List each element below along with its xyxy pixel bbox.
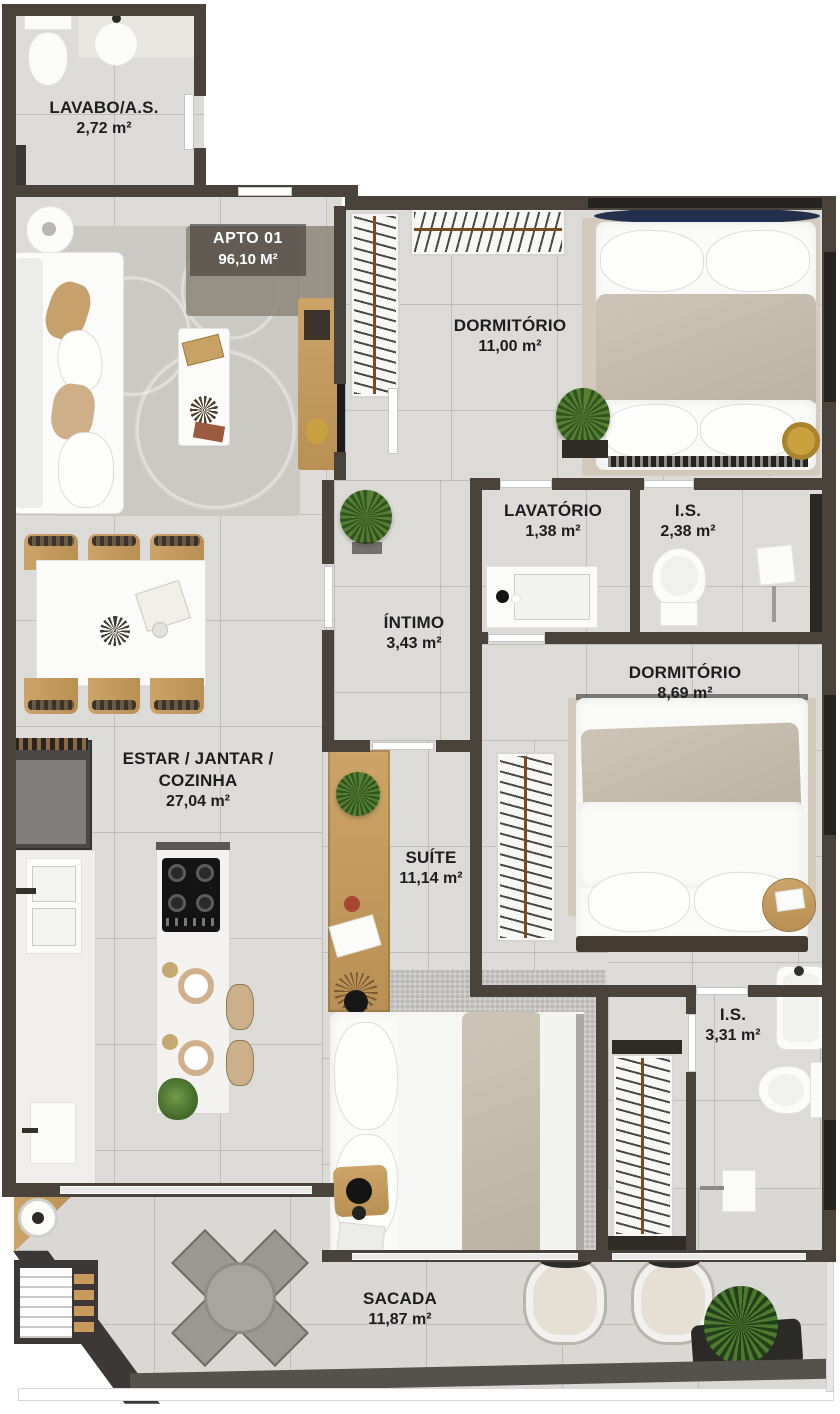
wall-entry-top <box>2 185 358 197</box>
room-label-sacada: SACADA 11,87 m² <box>320 1288 480 1331</box>
wall-suite-top-seg1 <box>334 740 370 752</box>
floor-plan-apto-01: APTO 01 96,10 M² <box>0 0 840 1414</box>
dormitorio1-pillow <box>599 228 705 294</box>
room-label-lavabo: LAVABO/A.S. 2,72 m² <box>12 97 196 140</box>
room-area-is1: 2,38 m² <box>628 522 748 543</box>
dormitorio1-side-rack-rod <box>373 216 376 394</box>
wall-intimo-left-upper <box>322 480 334 564</box>
room-label-is2: I.S. 3,31 m² <box>668 1004 798 1047</box>
lavabo-sink-basin <box>94 22 138 66</box>
island-stool <box>226 984 254 1030</box>
wicker-chair <box>526 1258 604 1342</box>
kitchen-sink-basin-1 <box>32 866 76 902</box>
room-name-is2: I.S. <box>668 1004 798 1026</box>
place-setting-plate <box>178 1040 214 1076</box>
room-label-is1: I.S. 2,38 m² <box>628 500 748 543</box>
room-area-suite: 11,14 m² <box>356 869 506 890</box>
room-name-lavatorio: LAVATÓRIO <box>486 500 620 522</box>
floor-lamp-shade <box>42 222 56 236</box>
lavatorio-faucet <box>496 590 509 603</box>
room-name-estar-line1: ESTAR / JANTAR / <box>88 748 308 770</box>
lavabo-toilet-tank <box>24 14 72 30</box>
dining-chair-back <box>28 700 74 710</box>
lavatorio-door <box>500 480 552 488</box>
room-name-dormitorio1: DORMITÓRIO <box>380 315 640 337</box>
suite-pillow <box>332 1021 400 1131</box>
kitchen-island-edge <box>156 842 230 850</box>
place-setting-bowl <box>162 962 178 978</box>
wall-dormitorio2-left <box>470 644 482 996</box>
closet-rack-rod <box>641 1058 644 1234</box>
suite-balcony-slider <box>352 1253 578 1260</box>
kitchen-utensil-rail <box>14 738 88 750</box>
kitchen-prep-sink <box>30 1102 76 1164</box>
island-stool <box>226 1040 254 1086</box>
sacada-outer-rail <box>18 1388 834 1401</box>
room-area-dormitorio1: 11,00 m² <box>380 337 640 358</box>
dormitorio1-plant <box>556 388 610 446</box>
room-label-suite: SUÍTE 11,14 m² <box>356 847 506 890</box>
dormitorio1-door <box>388 388 398 454</box>
kitchen-sink-basin-2 <box>32 908 76 946</box>
room-name-suite: SUÍTE <box>356 847 506 869</box>
room-label-lavatorio: LAVATÓRIO 1,38 m² <box>486 500 620 543</box>
dormitorio1-top-rack-hangers <box>414 212 562 252</box>
tv-console-vase <box>306 418 328 444</box>
wall-suite-top-seg2 <box>436 740 480 752</box>
room-area-lavabo: 2,72 m² <box>12 119 196 140</box>
place-setting-bowl <box>162 1034 178 1050</box>
island-greens <box>158 1078 198 1120</box>
place-setting-plate <box>178 968 214 1004</box>
is2-shower-arm <box>700 1186 724 1190</box>
room-area-estar: 27,04 m² <box>88 792 308 813</box>
dining-chair-back <box>28 536 74 546</box>
kitchen-cabinet-front <box>16 760 86 844</box>
wall-lavabo-top <box>2 4 206 16</box>
dormitorio1-plant-box <box>562 440 608 458</box>
dining-centerpiece <box>100 616 130 646</box>
dormitorio2-headboard <box>576 936 808 952</box>
living-balcony-slider <box>60 1186 312 1194</box>
wall-left-outer <box>2 4 16 1196</box>
lavabo-toilet-bowl <box>28 32 68 86</box>
apto-title-box: APTO 01 96,10 M² <box>190 224 306 276</box>
kitchen-sink-faucet <box>16 888 36 894</box>
tv-console-decor <box>304 310 330 340</box>
window-right-1 <box>824 252 836 402</box>
dining-chair-back <box>92 700 136 710</box>
is2-toilet-seat <box>768 1074 804 1106</box>
suite-stool-decor <box>352 1206 366 1220</box>
wall-is2-left-lower <box>686 1072 696 1262</box>
cooktop-knobs <box>166 918 216 926</box>
wall-lavabo-right-upper <box>194 4 206 96</box>
is1-shower-stem <box>772 586 776 622</box>
suite-blanket <box>462 1012 542 1258</box>
is2-shower-head <box>722 1170 756 1212</box>
is1-toilet-tank <box>660 602 698 626</box>
room-name-is1: I.S. <box>628 500 748 522</box>
room-area-is2: 3,31 m² <box>668 1026 798 1047</box>
intimo-plant-pot <box>352 542 382 554</box>
is1-door <box>644 480 694 488</box>
wall-living-dorm1-lower <box>334 452 346 480</box>
suite-bed-foot-trim <box>576 1014 584 1256</box>
room-area-dormitorio2: 8,69 m² <box>560 684 810 705</box>
sacada-right-rail <box>826 1256 834 1392</box>
cooktop-burner <box>168 894 186 912</box>
window-right-2 <box>824 695 836 835</box>
wall-h985-seg2 <box>748 985 836 997</box>
dormitorio1-bed-runner <box>608 456 808 467</box>
suite-door <box>372 742 434 750</box>
room-label-dormitorio1: DORMITÓRIO 11,00 m² <box>380 315 640 358</box>
room-name-lavabo: LAVABO/A.S. <box>12 97 196 119</box>
room-name-sacada: SACADA <box>320 1288 480 1310</box>
wall-h632-seg2 <box>545 632 836 644</box>
suite-plant <box>336 772 380 816</box>
suite-duvet-white <box>398 1012 464 1258</box>
wall-h478-seg3 <box>694 478 836 490</box>
room-name-dormitorio2: DORMITÓRIO <box>560 662 810 684</box>
dining-chair-back <box>154 700 200 710</box>
room-label-dormitorio2: DORMITÓRIO 8,69 m² <box>560 662 810 705</box>
dormitorio1-gold-tray <box>782 422 820 460</box>
dormitorio2-side-table-book <box>775 888 806 912</box>
dining-chair-back <box>154 536 200 546</box>
kitchen-prep-faucet <box>22 1128 38 1133</box>
intimo-door <box>324 566 333 628</box>
dormitorio2-door <box>488 634 545 642</box>
dining-glass <box>152 622 168 638</box>
room-label-intimo: ÍNTIMO 3,43 m² <box>344 612 484 655</box>
room-name-intimo: ÍNTIMO <box>344 612 484 634</box>
lavatorio-basin <box>514 574 590 620</box>
dormitorio2-closet-rod <box>524 756 527 938</box>
room-label-estar: ESTAR / JANTAR / COZINHA 27,04 m² <box>88 748 308 813</box>
dormitorio1-top-rack-rod <box>414 228 562 231</box>
wall-intimo-left-lower <box>322 630 334 752</box>
suite-stool-bowl <box>346 1178 372 1204</box>
grill-center <box>32 1212 44 1224</box>
cooktop-burner <box>196 894 214 912</box>
apto-title: APTO 01 <box>190 228 306 250</box>
is1-toilet-seat <box>660 556 698 596</box>
room-area-lavatorio: 1,38 m² <box>486 522 620 543</box>
closet-balcony-slider <box>612 1253 806 1260</box>
suite-kettle <box>344 990 368 1014</box>
room-area-sacada: 11,87 m² <box>320 1310 480 1331</box>
cooktop-burner <box>168 864 186 882</box>
wall-suite-right <box>596 996 608 1262</box>
wall-h478-seg2 <box>552 478 644 490</box>
window-right-3 <box>824 1120 836 1210</box>
sofa-chaise-cushion <box>58 432 114 508</box>
dormitorio1-window-band <box>588 198 832 208</box>
coffee-table-flowers <box>190 396 218 424</box>
suite-decor-fruit <box>344 896 360 912</box>
sofa-backrest <box>15 258 43 508</box>
intimo-plant <box>340 490 392 544</box>
sacada-plant <box>704 1286 778 1364</box>
dining-chair-back <box>92 536 136 546</box>
room-area-intimo: 3,43 m² <box>344 634 484 655</box>
apto-area: 96,10 M² <box>190 250 306 270</box>
sacada-round-table <box>204 1262 276 1334</box>
room-name-estar-line2: COZINHA <box>88 770 308 792</box>
cooktop-burner <box>196 864 214 882</box>
entry-door <box>238 187 292 196</box>
closet-door <box>696 987 748 995</box>
wall-living-dorm1-upper <box>334 206 346 384</box>
is2-bathtub-faucet <box>794 966 804 976</box>
wall-h985-seg1 <box>470 985 696 997</box>
sacada-storage-slats <box>20 1268 72 1338</box>
is1-shower-head <box>756 544 796 586</box>
lavatorio-soap-dish <box>511 594 521 604</box>
sacada-storage-wood-bars <box>74 1274 94 1336</box>
